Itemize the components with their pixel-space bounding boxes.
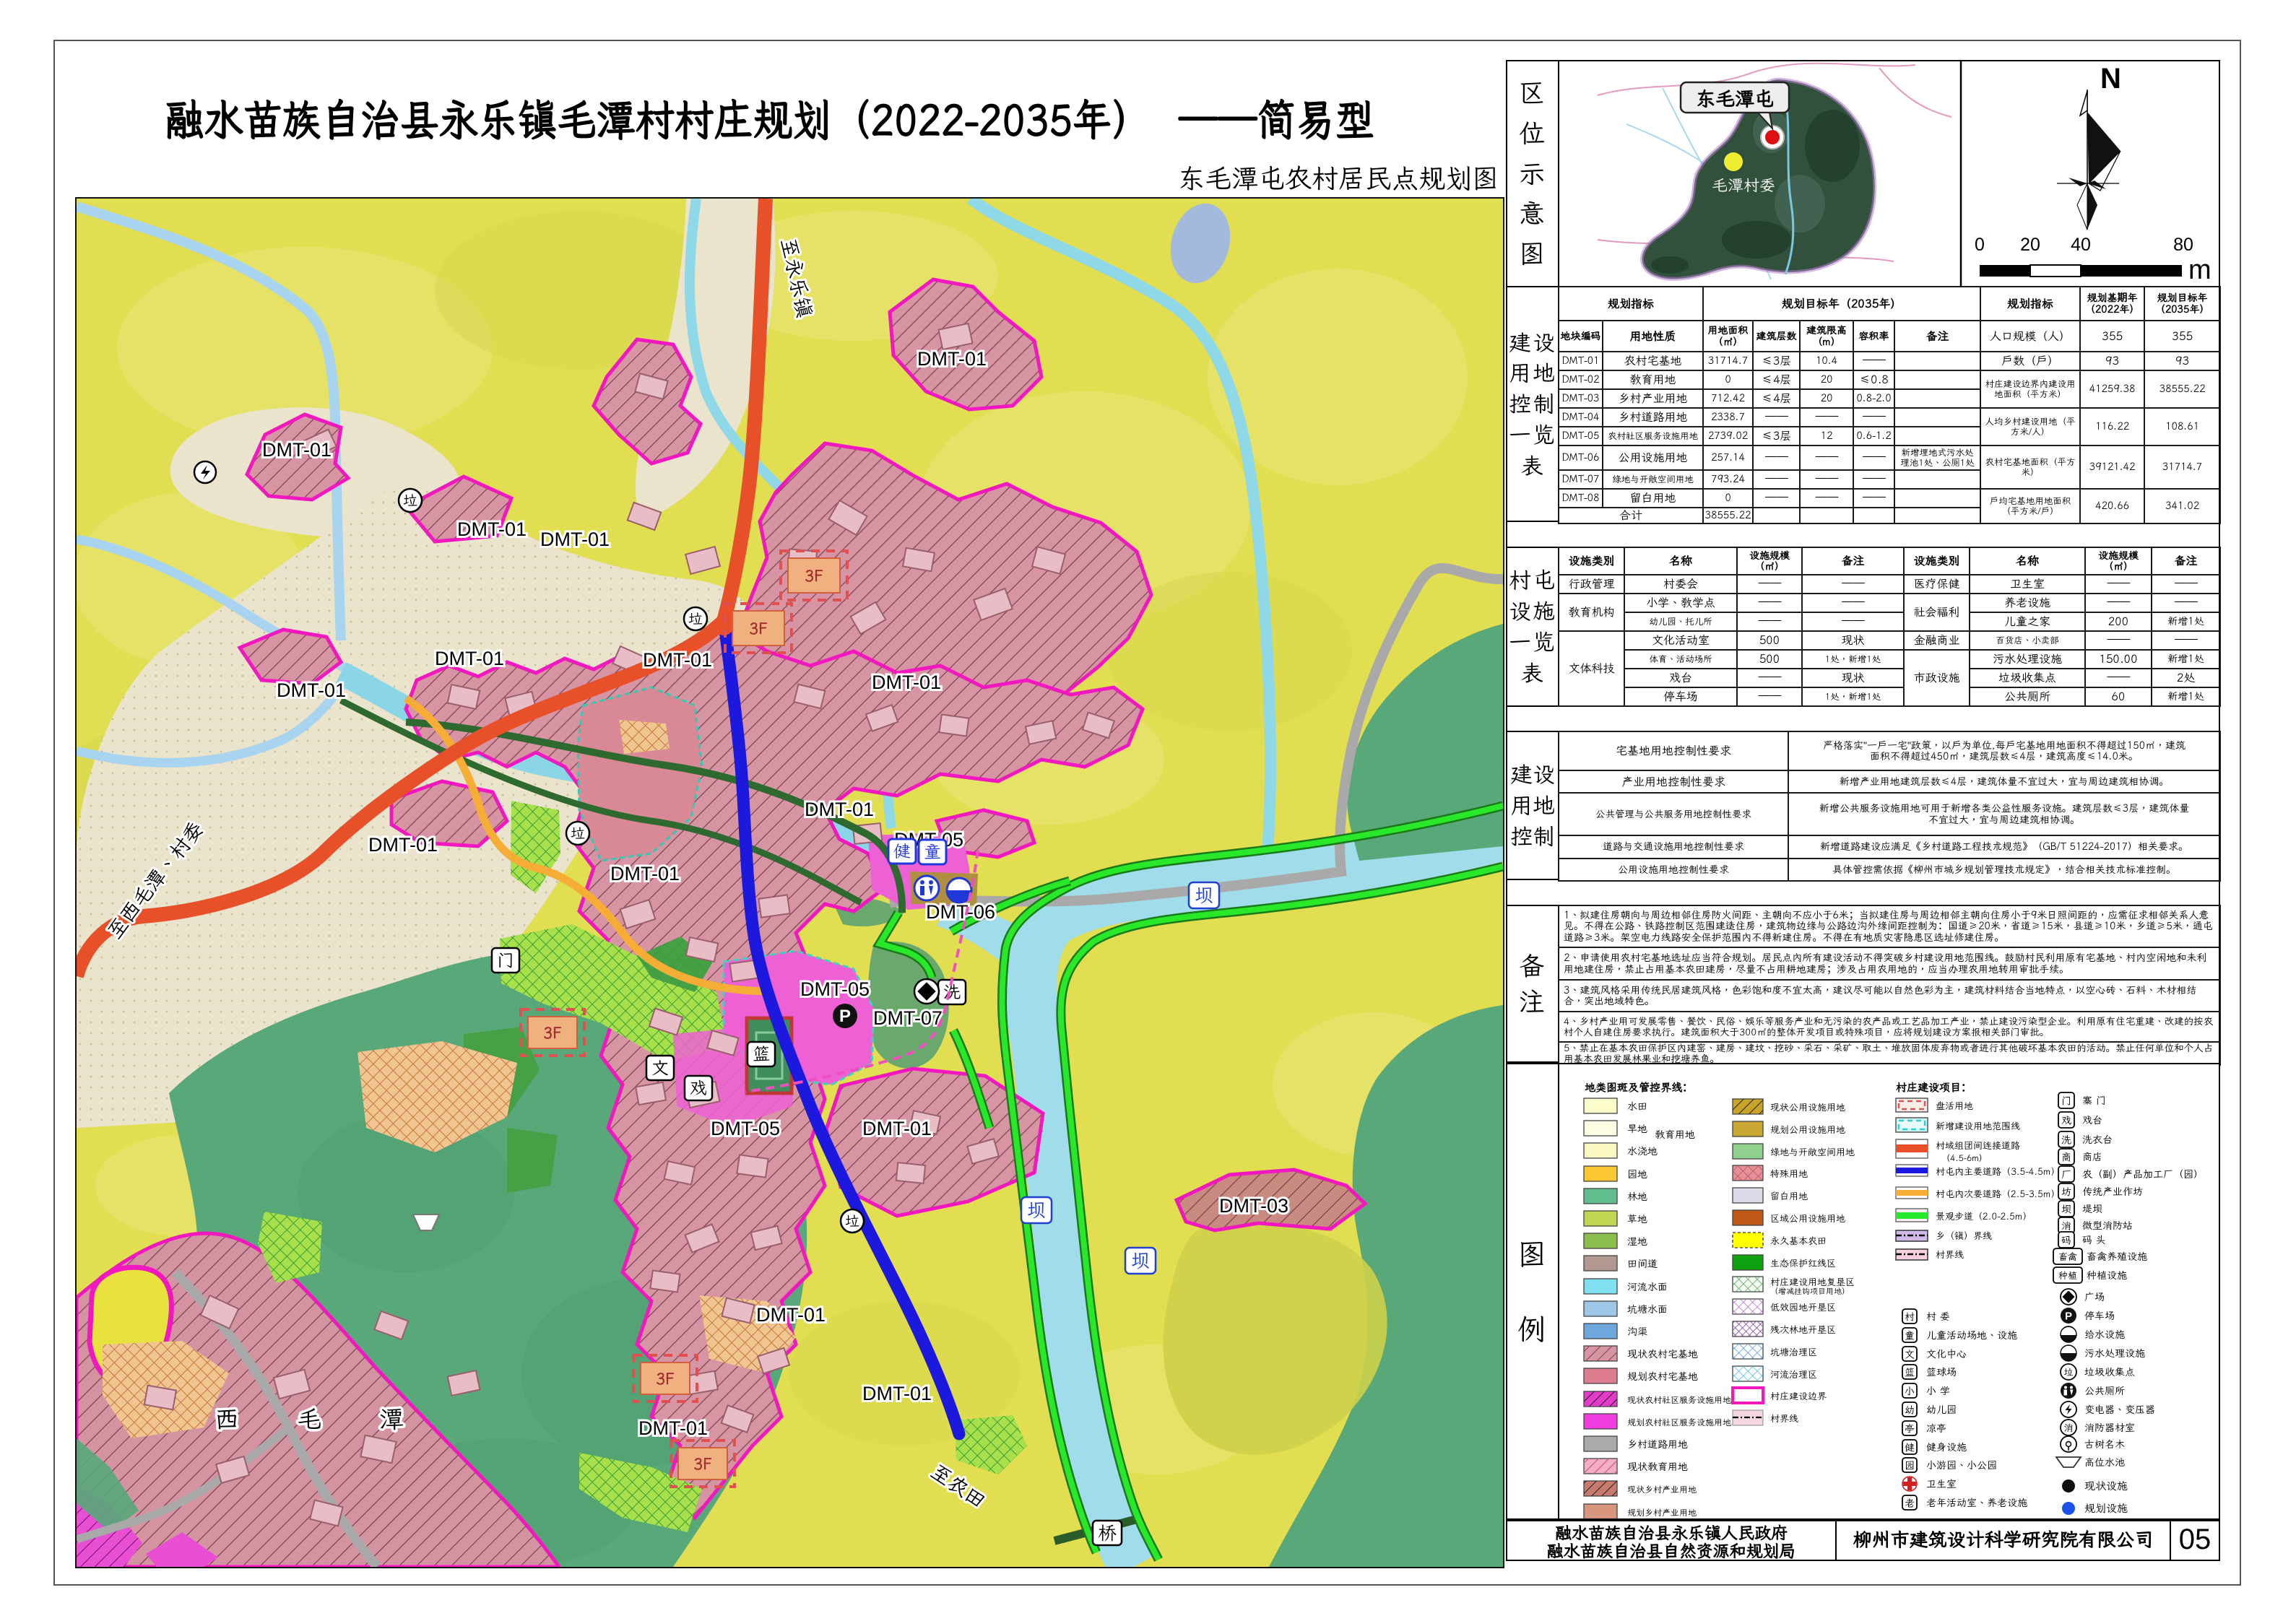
svg-text:DMT-05: DMT-05: [711, 1118, 780, 1139]
svg-text:老年活动室、养老设施: 老年活动室、养老设施: [1926, 1496, 2027, 1509]
svg-text:DMT-01: DMT-01: [457, 518, 527, 540]
svg-text:DMT-06: DMT-06: [926, 901, 995, 923]
svg-text:村界线: 村界线: [1936, 1248, 1964, 1261]
svg-text:畜禽养殖设施: 畜禽养殖设施: [2087, 1250, 2147, 1263]
svg-text:DMT-01: DMT-01: [805, 799, 874, 820]
svg-text:DMT-03: DMT-03: [1219, 1195, 1288, 1217]
svg-text:桥: 桥: [1098, 1521, 1117, 1545]
svg-text:村屯内次要道路（2.5-3.5m）: 村屯内次要道路（2.5-3.5m）: [1936, 1188, 2060, 1200]
svg-text:门: 门: [497, 948, 514, 971]
svg-text:坝: 坝: [2061, 1203, 2071, 1216]
svg-text:小: 小: [1905, 1385, 1915, 1398]
svg-text:戏: 戏: [690, 1076, 707, 1099]
svg-text:草地: 草地: [1627, 1212, 1647, 1225]
svg-text:DMT-01: DMT-01: [540, 529, 610, 550]
svg-text:微型消防站: 微型消防站: [2082, 1219, 2133, 1232]
svg-text:教育用地: 教育用地: [1655, 1128, 1695, 1141]
svg-text:DMT-07: DMT-07: [873, 1007, 943, 1029]
svg-text:文化中心: 文化中心: [1926, 1347, 1967, 1360]
svg-text:DMT-01: DMT-01: [435, 648, 504, 669]
svg-text:新增建设用地范围线: 新增建设用地范围线: [1936, 1120, 2020, 1132]
svg-text:特殊用地: 特殊用地: [1770, 1168, 1808, 1180]
svg-text:广场: 广场: [2084, 1290, 2105, 1303]
svg-text:DMT-01: DMT-01: [262, 439, 332, 461]
svg-text:凉亭: 凉亭: [1926, 1422, 1946, 1435]
svg-text:DMT-01: DMT-01: [638, 1417, 708, 1439]
svg-text:传统产业作坊: 传统产业作坊: [2082, 1185, 2143, 1198]
svg-text:垃: 垃: [403, 490, 417, 510]
svg-text:现状乡村产业用地: 现状乡村产业用地: [1627, 1485, 1697, 1495]
svg-text:垃: 垃: [845, 1211, 859, 1230]
svg-text:种植设施: 种植设施: [2087, 1269, 2127, 1282]
svg-text:40: 40: [2071, 235, 2091, 255]
svg-text:健: 健: [893, 839, 911, 862]
svg-text:垃圾收集点: 垃圾收集点: [2084, 1365, 2135, 1378]
svg-text:毛潭村委: 毛潭村委: [1712, 175, 1775, 196]
svg-text:湿地: 湿地: [1627, 1235, 1647, 1248]
svg-text:村域组团间连接道路: 村域组团间连接道路: [1936, 1139, 2020, 1152]
svg-text:幼: 幼: [1905, 1404, 1915, 1417]
svg-text:田间道: 田间道: [1627, 1257, 1658, 1270]
svg-text:农（副）产品加工厂（园）: 农（副）产品加工厂（园）: [2082, 1168, 2204, 1181]
svg-text:坝: 坝: [1195, 883, 1213, 908]
svg-text:村 委: 村 委: [1926, 1310, 1950, 1323]
svg-text:坝: 坝: [1027, 1198, 1046, 1222]
svg-text:文: 文: [651, 1056, 669, 1079]
svg-text:种植: 种植: [2058, 1269, 2077, 1282]
svg-text:（增减挂钩项目用地）: （增减挂钩项目用地）: [1770, 1287, 1850, 1297]
svg-text:生态保护红线区: 生态保护红线区: [1770, 1257, 1836, 1269]
svg-text:规划农村社区服务设施用地: 规划农村社区服务设施用地: [1627, 1417, 1731, 1428]
svg-text:0: 0: [1975, 235, 1985, 255]
svg-text:3F: 3F: [544, 1022, 562, 1043]
svg-text:坑塘水面: 坑塘水面: [1627, 1303, 1668, 1316]
svg-text:DMT-01: DMT-01: [610, 863, 680, 885]
svg-text:堤坝: 堤坝: [2082, 1202, 2102, 1215]
svg-text:村庄建设边界: 村庄建设边界: [1770, 1390, 1827, 1402]
svg-text:码: 码: [2061, 1234, 2071, 1247]
svg-text:篮球场: 篮球场: [1926, 1365, 1957, 1378]
svg-text:河流水面: 河流水面: [1627, 1280, 1668, 1293]
svg-text:区域公用设施用地: 区域公用设施用地: [1770, 1212, 1845, 1225]
svg-text:规划乡村产业用地: 规划乡村产业用地: [1627, 1508, 1697, 1518]
svg-text:幼儿园: 幼儿园: [1926, 1403, 1957, 1416]
svg-text:残次林地开垦区: 残次林地开垦区: [1770, 1324, 1836, 1336]
svg-text:给水设施: 给水设施: [2084, 1328, 2125, 1341]
svg-text:低效园地开垦区: 低效园地开垦区: [1770, 1301, 1836, 1313]
svg-text:垃: 垃: [688, 609, 703, 628]
svg-text:变电器、变压器: 变电器、变压器: [2084, 1403, 2155, 1416]
svg-text:门: 门: [2061, 1095, 2071, 1108]
svg-text:消: 消: [2061, 1220, 2071, 1233]
svg-text:DMT-01: DMT-01: [643, 649, 712, 671]
svg-text:商店: 商店: [2082, 1150, 2102, 1163]
svg-text:园: 园: [1905, 1459, 1915, 1472]
svg-text:小游园、小公园: 小游园、小公园: [1926, 1459, 1997, 1472]
svg-text:厂: 厂: [2061, 1168, 2071, 1181]
svg-text:畜禽: 畜禽: [2058, 1251, 2077, 1263]
svg-text:戏: 戏: [2061, 1114, 2071, 1127]
svg-text:停车场: 停车场: [2084, 1309, 2115, 1322]
svg-text:消防器材室: 消防器材室: [2084, 1421, 2135, 1434]
svg-text:20: 20: [2020, 235, 2040, 255]
svg-text:商: 商: [2061, 1151, 2071, 1164]
svg-text:DMT-01: DMT-01: [277, 679, 346, 701]
svg-text:水浇地: 水浇地: [1627, 1144, 1658, 1157]
svg-text:m: m: [2188, 255, 2211, 285]
svg-text:童: 童: [1905, 1329, 1915, 1342]
svg-text:小 学: 小 学: [1926, 1384, 1950, 1397]
svg-text:N: N: [2100, 63, 2121, 95]
svg-text:亭: 亭: [1905, 1422, 1915, 1435]
svg-text:（4.5-6m）: （4.5-6m）: [1941, 1153, 1988, 1164]
svg-text:消: 消: [2063, 1422, 2073, 1434]
svg-text:洗衣台: 洗衣台: [2082, 1133, 2113, 1146]
svg-text:80: 80: [2173, 235, 2193, 255]
svg-text:3F: 3F: [657, 1368, 675, 1389]
svg-text:老: 老: [1905, 1497, 1915, 1510]
svg-text:现状公用设施用地: 现状公用设施用地: [1770, 1101, 1845, 1113]
svg-text:健: 健: [1905, 1441, 1915, 1454]
svg-text:留白用地: 留白用地: [1770, 1190, 1808, 1202]
svg-text:现状农村宅基地: 现状农村宅基地: [1627, 1347, 1698, 1360]
svg-text:永久基本农田: 永久基本农田: [1770, 1235, 1827, 1247]
svg-text:DMT-01: DMT-01: [917, 348, 987, 370]
svg-text:坝: 坝: [1131, 1248, 1150, 1273]
svg-text:规划设施: 规划设施: [2084, 1502, 2128, 1516]
svg-text:规划农村宅基地: 规划农村宅基地: [1627, 1370, 1698, 1383]
svg-text:童: 童: [924, 840, 941, 863]
svg-text:儿童活动场地、设施: 儿童活动场地、设施: [1926, 1329, 2017, 1342]
svg-text:洗: 洗: [2061, 1134, 2071, 1147]
svg-text:村庄建设项目：: 村庄建设项目：: [1896, 1081, 1972, 1095]
svg-text:污水处理设施: 污水处理设施: [2084, 1347, 2145, 1360]
svg-text:旱地: 旱地: [1627, 1122, 1647, 1135]
svg-text:DMT-01: DMT-01: [368, 834, 438, 856]
svg-text:村界线: 村界线: [1770, 1412, 1798, 1425]
svg-text:坊: 坊: [2061, 1186, 2071, 1199]
svg-text:园地: 园地: [1627, 1168, 1647, 1181]
svg-text:现状农村社区服务设施用地: 现状农村社区服务设施用地: [1627, 1395, 1731, 1406]
svg-text:DMT-01: DMT-01: [756, 1304, 826, 1326]
svg-text:寨 门: 寨 门: [2082, 1094, 2106, 1107]
svg-text:文: 文: [1905, 1348, 1915, 1361]
svg-text:垃: 垃: [2063, 1366, 2074, 1378]
svg-text:P: P: [2065, 1311, 2072, 1323]
svg-text:村: 村: [1905, 1311, 1915, 1324]
svg-text:篮: 篮: [753, 1042, 770, 1065]
svg-text:垃: 垃: [571, 823, 585, 843]
svg-text:3F: 3F: [694, 1453, 712, 1474]
svg-text:健身设施: 健身设施: [1926, 1440, 1967, 1453]
svg-text:林地: 林地: [1627, 1190, 1647, 1203]
svg-text:公共厕所: 公共厕所: [2084, 1384, 2126, 1397]
svg-text:乡村道路用地: 乡村道路用地: [1627, 1438, 1688, 1451]
svg-text:DMT-01: DMT-01: [872, 672, 941, 693]
svg-text:现状设施: 现状设施: [2084, 1479, 2128, 1493]
svg-text:古树名木: 古树名木: [2084, 1438, 2125, 1451]
svg-text:坑塘治理区: 坑塘治理区: [1770, 1346, 1817, 1358]
svg-text:东毛潭屯: 东毛潭屯: [1696, 85, 1774, 111]
svg-text:码 头: 码 头: [2082, 1233, 2106, 1246]
svg-text:3F: 3F: [750, 618, 768, 638]
svg-text:绿地与开敞空间用地: 绿地与开敞空间用地: [1770, 1146, 1855, 1158]
svg-text:水田: 水田: [1627, 1100, 1647, 1113]
svg-text:DMT-01: DMT-01: [862, 1118, 932, 1139]
svg-text:P: P: [839, 1007, 851, 1026]
svg-text:村屯内主要道路（3.5-4.5m）: 村屯内主要道路（3.5-4.5m）: [1936, 1165, 2060, 1178]
svg-text:3F: 3F: [805, 565, 823, 586]
svg-text:现状教育用地: 现状教育用地: [1627, 1460, 1688, 1473]
svg-text:乡（镇）界线: 乡（镇）界线: [1936, 1230, 1992, 1242]
svg-text:沟渠: 沟渠: [1627, 1325, 1647, 1338]
svg-text:地类图斑及管控界线：: 地类图斑及管控界线：: [1585, 1081, 1693, 1095]
svg-text:河流治理区: 河流治理区: [1770, 1368, 1817, 1381]
svg-text:戏台: 戏台: [2082, 1113, 2102, 1126]
svg-text:高位水池: 高位水池: [2084, 1456, 2125, 1469]
svg-text:卫生室: 卫生室: [1926, 1477, 1957, 1490]
svg-text:篮: 篮: [1905, 1366, 1915, 1379]
svg-text:DMT-05: DMT-05: [800, 978, 870, 1000]
svg-text:西毛潭: 西毛潭: [215, 1402, 462, 1435]
svg-text:景观步道（2.0-2.5m）: 景观步道（2.0-2.5m）: [1936, 1210, 2032, 1222]
svg-text:规划公用设施用地: 规划公用设施用地: [1770, 1124, 1845, 1136]
svg-text:盘活用地: 盘活用地: [1936, 1100, 1973, 1112]
svg-text:DMT-01: DMT-01: [862, 1383, 932, 1404]
